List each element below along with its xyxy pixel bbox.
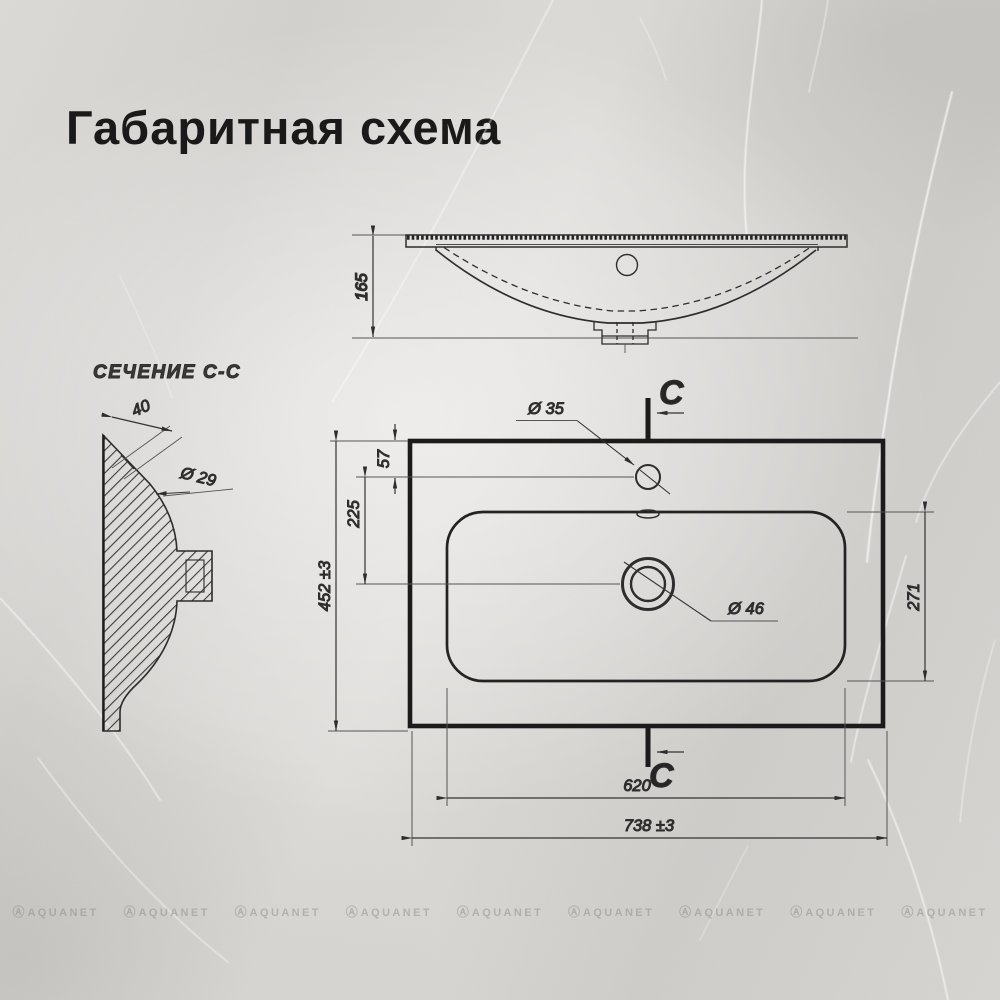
dim-label-738: 738 ±3 — [624, 817, 675, 835]
dimension-scheme-page: Габаритная схема — [0, 0, 1000, 1000]
dim-label-57: 57 — [375, 449, 393, 468]
section-marker-top-label: C — [659, 374, 684, 412]
section-marker-bottom-label: C — [649, 757, 674, 795]
dim-label-faucet-dia: Ø 35 — [527, 400, 565, 418]
dim-label-drain-dia: Ø 46 — [727, 600, 765, 618]
dim-label-225: 225 — [345, 499, 363, 528]
dim-label-452: 452 ±3 — [316, 560, 334, 611]
dim-label-620: 620 — [623, 777, 651, 795]
technical-drawing: 165 СЕЧЕНИЕ С-С — [0, 0, 1000, 1000]
dim-label-165: 165 — [353, 272, 371, 300]
dim-label-271: 271 — [905, 583, 923, 612]
section-view-label: СЕЧЕНИЕ С-С — [93, 362, 241, 383]
